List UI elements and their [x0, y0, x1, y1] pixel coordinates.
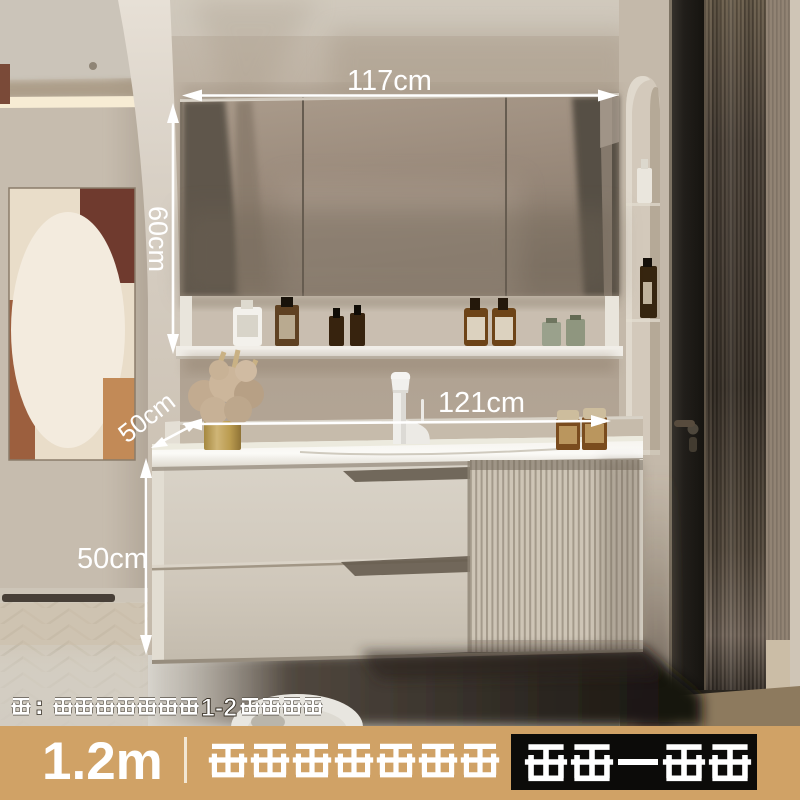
- svg-text:1.2m: 1.2m: [42, 732, 163, 791]
- svg-text:1-2: 1-2: [201, 694, 237, 722]
- svg-text:117cm: 117cm: [347, 65, 432, 97]
- svg-text:60cm: 60cm: [143, 206, 173, 272]
- svg-text:121cm: 121cm: [438, 387, 525, 419]
- svg-text:50cm: 50cm: [77, 543, 148, 575]
